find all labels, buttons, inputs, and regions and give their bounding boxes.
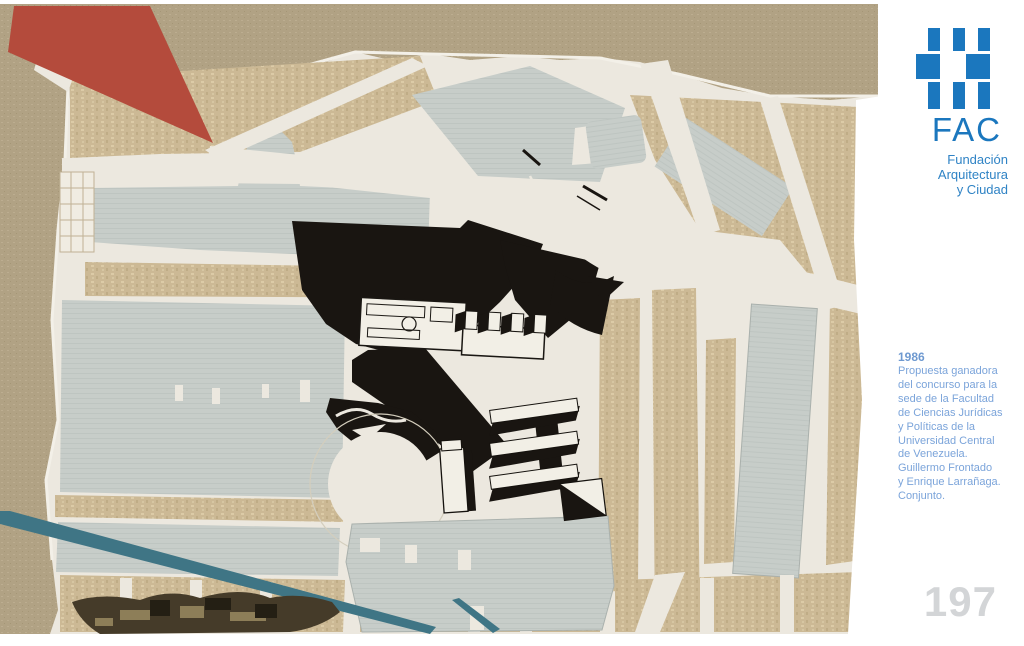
grid-fragment (60, 172, 94, 252)
caption-year: 1986 (898, 350, 1012, 364)
fac-logo-icon (908, 26, 1008, 110)
fac-logo-block: FAC Fundación Arquitectura y Ciudad (898, 26, 1008, 197)
caption-block: 1986 Propuesta ganadora del concurso par… (898, 350, 1012, 504)
aerial-photo-fragment (72, 592, 340, 634)
caption-text: Propuesta ganadora del concurso para la … (898, 365, 1012, 504)
page-number: 197 (924, 581, 997, 623)
fac-foundation-name: Fundación Arquitectura y Ciudad (898, 152, 1008, 197)
site-plan-svg (0, 0, 882, 646)
publication-page: FAC Fundación Arquitectura y Ciudad 1986… (0, 0, 1024, 646)
fac-acronym: FAC (898, 113, 1002, 146)
sidebar: FAC Fundación Arquitectura y Ciudad 1986… (882, 0, 1024, 646)
site-plan-collage (0, 0, 882, 646)
